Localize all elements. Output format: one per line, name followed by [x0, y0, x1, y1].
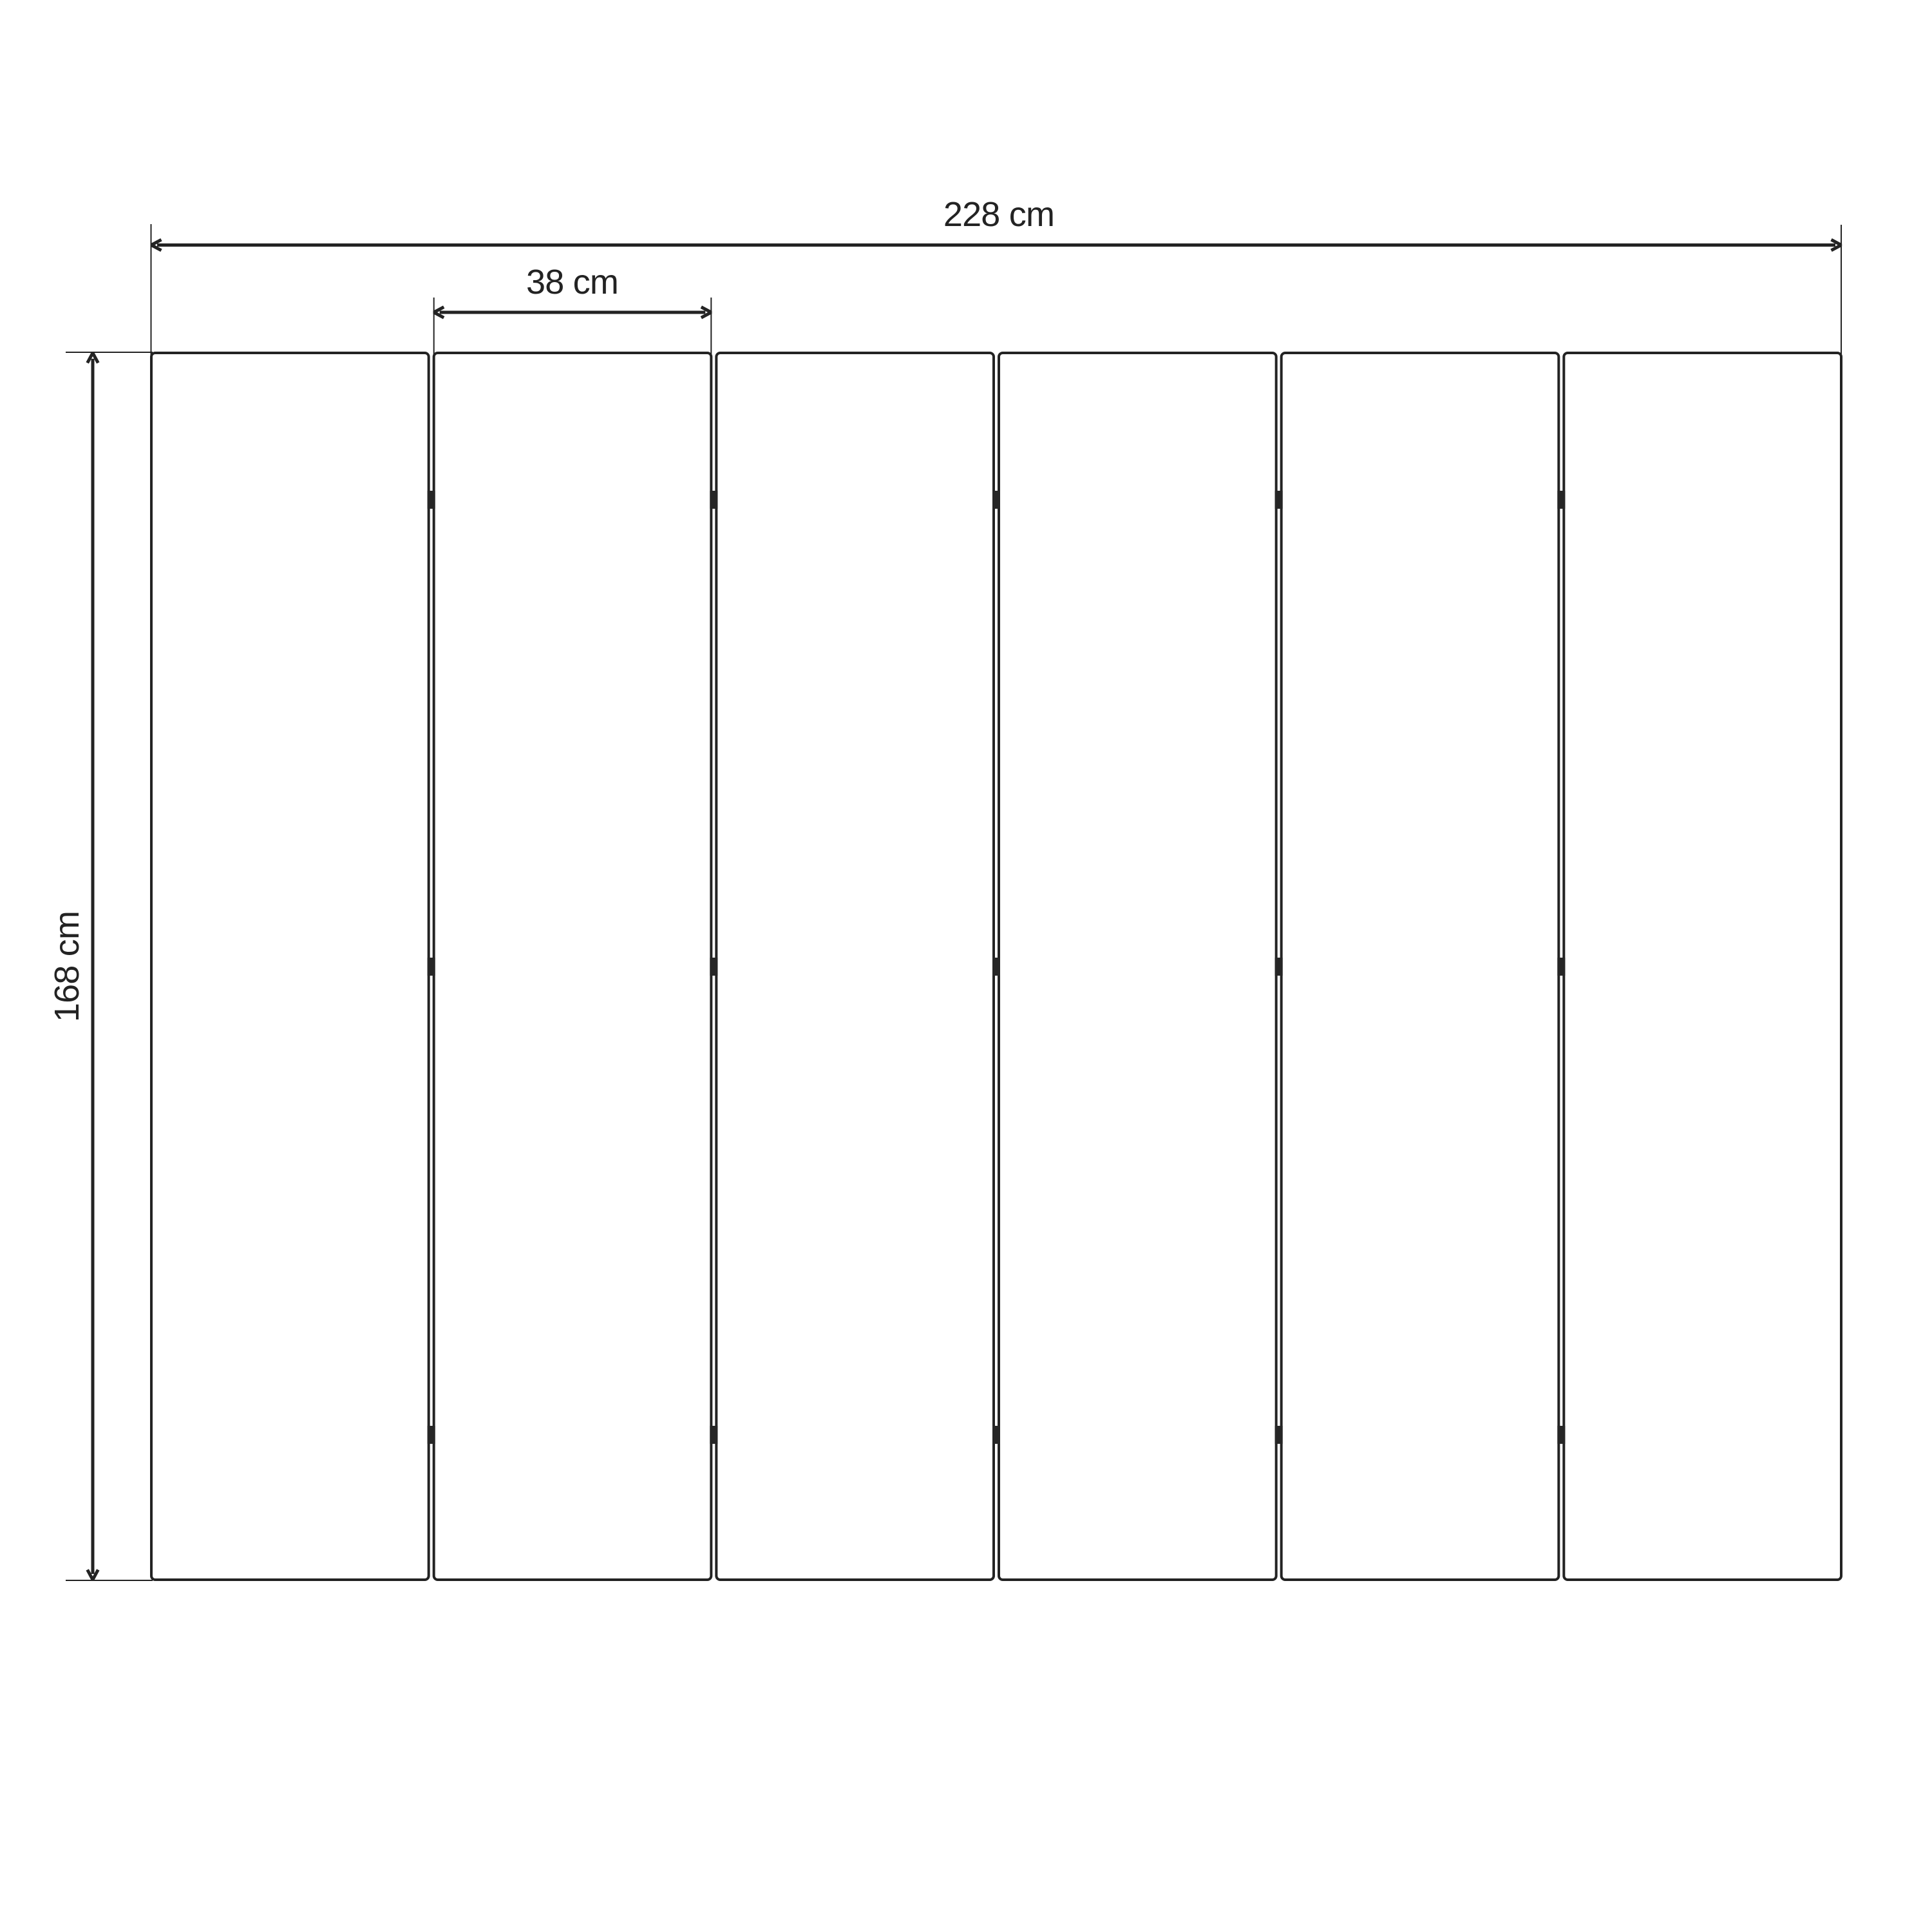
svg-text:168 cm: 168 cm — [48, 911, 86, 1022]
svg-text:38 cm: 38 cm — [526, 263, 618, 301]
svg-text:228 cm: 228 cm — [943, 195, 1054, 234]
